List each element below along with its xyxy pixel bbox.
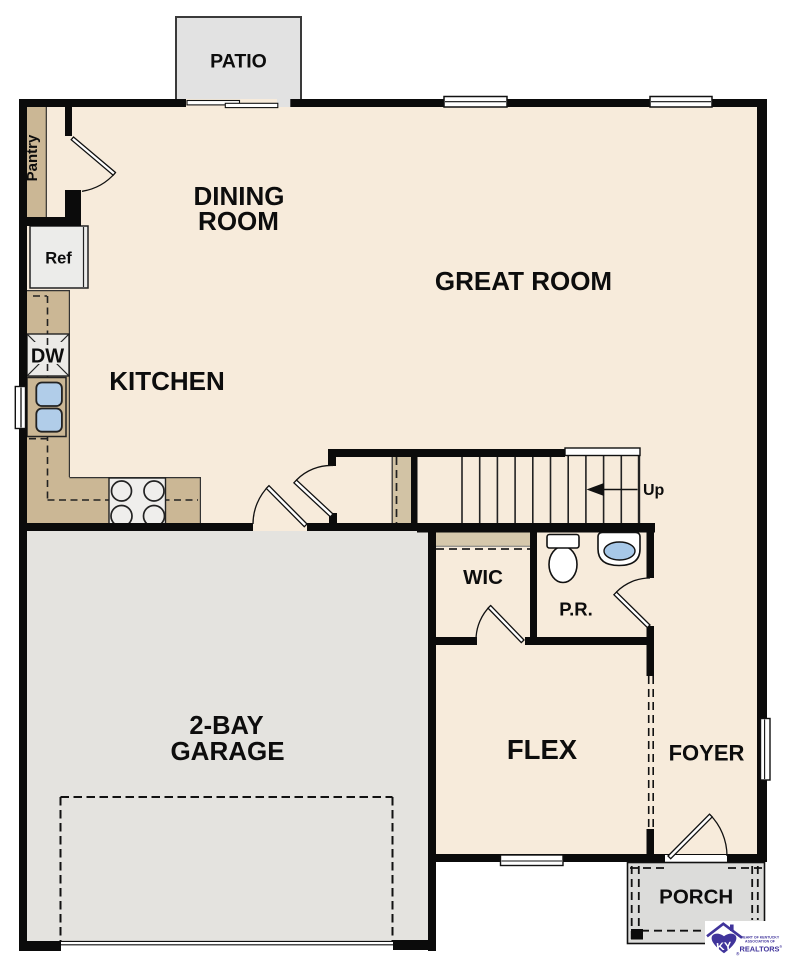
svg-text:Up: Up [643,482,665,499]
svg-text:P.R.: P.R. [559,599,593,620]
svg-text:GREAT ROOM: GREAT ROOM [435,266,612,296]
svg-text:DW: DW [31,346,64,368]
svg-text:KITCHEN: KITCHEN [109,366,225,396]
svg-text:GARAGE: GARAGE [170,736,284,766]
svg-text:FLEX: FLEX [507,734,578,765]
svg-text:REALTORS: REALTORS [740,945,780,954]
svg-text:ASSOCIATION OF: ASSOCIATION OF [745,940,776,944]
svg-text:Ref: Ref [45,250,72,268]
svg-text:ROOM: ROOM [198,206,279,236]
svg-text:KY: KY [716,940,733,954]
svg-text:WIC: WIC [463,566,503,589]
svg-text:®: ® [780,945,783,949]
svg-text:PATIO: PATIO [210,51,267,73]
svg-text:PORCH: PORCH [659,886,733,909]
svg-text:FOYER: FOYER [669,741,745,766]
